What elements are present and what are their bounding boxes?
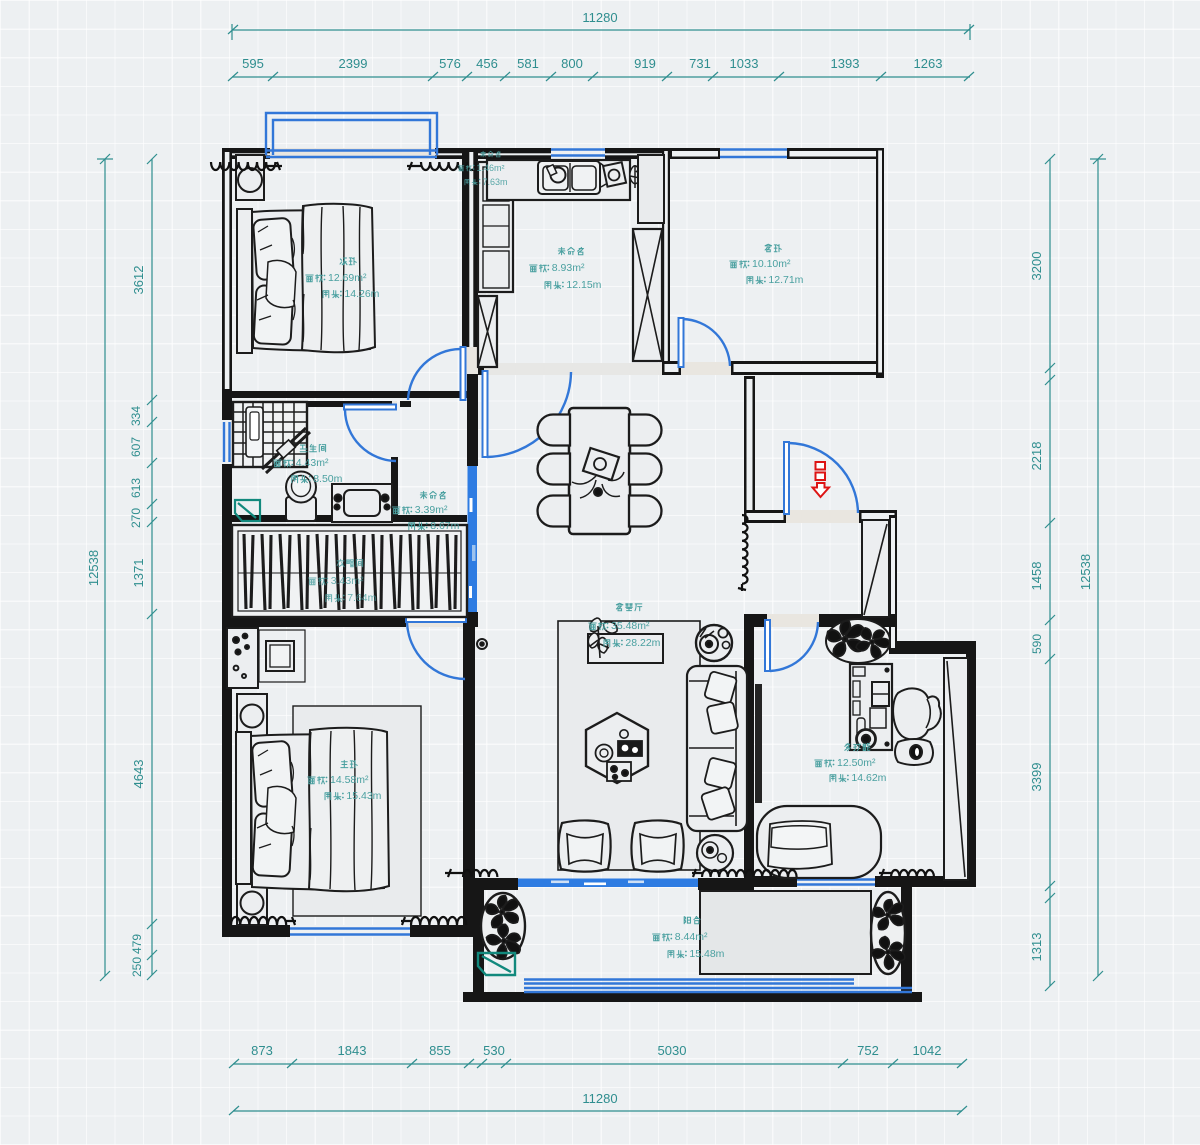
- svg-text:3200: 3200: [1029, 252, 1044, 281]
- svg-text:3399: 3399: [1029, 763, 1044, 792]
- svg-text:1371: 1371: [131, 559, 146, 588]
- svg-text:11280: 11280: [582, 10, 617, 25]
- svg-text:1393: 1393: [831, 56, 860, 71]
- svg-text:873: 873: [251, 1043, 273, 1058]
- svg-text:800: 800: [561, 56, 583, 71]
- svg-text:1042: 1042: [913, 1043, 942, 1058]
- svg-text:334: 334: [129, 406, 143, 426]
- svg-text:8.67m: 8.67m: [430, 520, 459, 532]
- svg-text:12.71m: 12.71m: [768, 274, 803, 286]
- svg-text:3.43m²: 3.43m²: [331, 575, 364, 587]
- svg-text:1033: 1033: [730, 56, 759, 71]
- svg-text:581: 581: [517, 56, 539, 71]
- svg-text:1263: 1263: [914, 56, 943, 71]
- svg-text:270: 270: [129, 508, 143, 528]
- svg-text:15.48m: 15.48m: [689, 948, 724, 960]
- svg-text:5030: 5030: [658, 1043, 687, 1058]
- svg-text:595: 595: [242, 56, 264, 71]
- svg-text:35.48m²: 35.48m²: [611, 620, 650, 632]
- svg-text:3.39m²: 3.39m²: [415, 504, 448, 516]
- svg-text:14.26m: 14.26m: [344, 288, 379, 300]
- svg-text:2218: 2218: [1029, 442, 1044, 471]
- svg-text:8.93m²: 8.93m²: [552, 262, 585, 274]
- svg-text:530: 530: [483, 1043, 505, 1058]
- svg-text:15.43m: 15.43m: [346, 790, 381, 802]
- svg-text:1458: 1458: [1029, 562, 1044, 591]
- svg-text:250: 250: [130, 957, 144, 977]
- svg-text:456: 456: [476, 56, 498, 71]
- svg-text:8.50m: 8.50m: [313, 473, 342, 485]
- svg-text:3612: 3612: [131, 266, 146, 295]
- svg-text:731: 731: [689, 56, 711, 71]
- svg-text:12.15m: 12.15m: [566, 279, 601, 291]
- svg-text:479: 479: [130, 934, 144, 954]
- svg-text:607: 607: [129, 437, 143, 457]
- svg-text:613: 613: [129, 478, 143, 498]
- svg-text:12.50m²: 12.50m²: [837, 757, 876, 769]
- svg-text:1843: 1843: [338, 1043, 367, 1058]
- svg-text:855: 855: [429, 1043, 451, 1058]
- svg-text:1313: 1313: [1029, 933, 1044, 962]
- svg-text:4643: 4643: [131, 760, 146, 789]
- svg-text:12538: 12538: [86, 550, 101, 586]
- svg-text:7.63m: 7.63m: [483, 177, 508, 187]
- svg-text:2399: 2399: [339, 56, 368, 71]
- svg-text:752: 752: [857, 1043, 879, 1058]
- svg-text:10.10m²: 10.10m²: [752, 258, 791, 270]
- svg-text:576: 576: [439, 56, 461, 71]
- svg-text:4.43m²: 4.43m²: [296, 457, 329, 469]
- svg-text:919: 919: [634, 56, 656, 71]
- svg-text:14.62m: 14.62m: [851, 772, 886, 784]
- svg-text:11280: 11280: [582, 1091, 617, 1106]
- svg-text:590: 590: [1030, 634, 1044, 654]
- svg-text:1.46m²: 1.46m²: [477, 163, 505, 173]
- svg-text:14.58m²: 14.58m²: [330, 774, 369, 786]
- svg-text:8.44m²: 8.44m²: [675, 931, 708, 943]
- svg-text:12538: 12538: [1078, 554, 1093, 590]
- svg-text:12.69m²: 12.69m²: [328, 272, 367, 284]
- svg-text:7.64m: 7.64m: [347, 592, 376, 604]
- svg-text:28.22m: 28.22m: [625, 637, 660, 649]
